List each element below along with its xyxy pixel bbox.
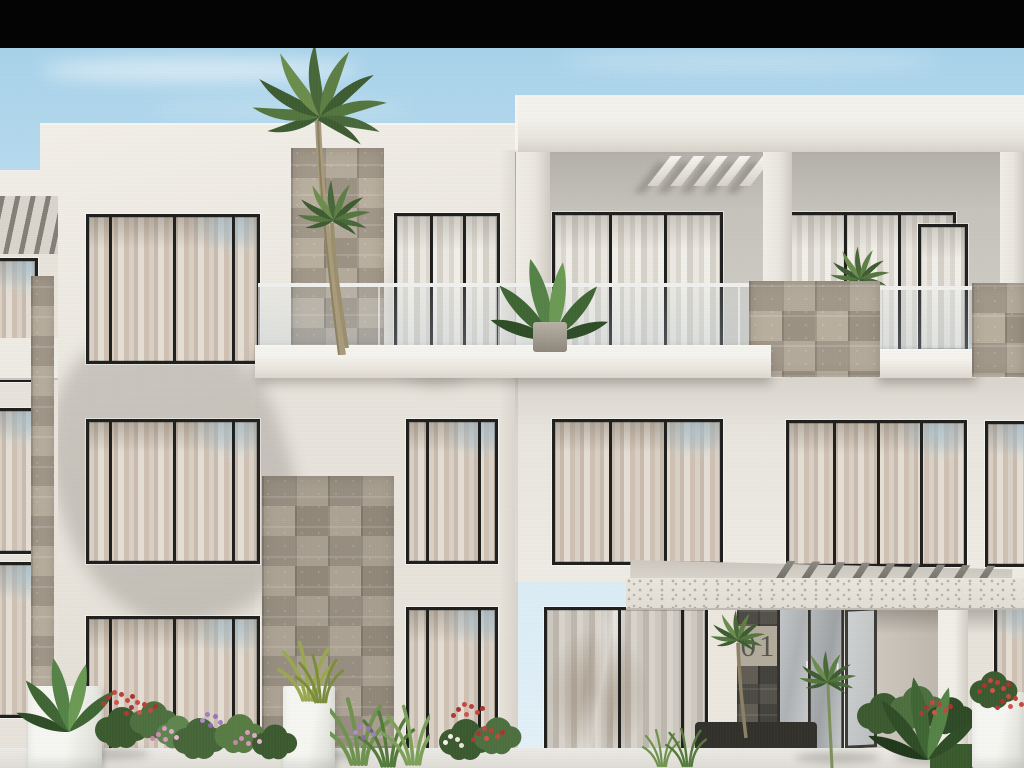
banana-plant-left [14, 604, 124, 739]
flowers-red [135, 700, 140, 705]
roof-slab [515, 95, 1024, 154]
pergola-fins [655, 152, 775, 194]
grass-tufts [635, 728, 715, 768]
far-left-slab [0, 170, 58, 198]
fern-plant [276, 628, 346, 708]
window-mullion [426, 422, 429, 561]
letterbox-bar [0, 0, 1024, 48]
stone-parapet [972, 283, 1024, 377]
window-right-2f-2 [786, 420, 967, 567]
flowers-pink [245, 730, 250, 735]
window-mullion [478, 422, 481, 561]
window-mullion [109, 217, 112, 361]
flowers-red [112, 690, 117, 695]
window-right-2f-3 [985, 421, 1024, 567]
window-mullion [609, 422, 612, 562]
balcony-slab-segment [878, 349, 976, 378]
window-mullion [664, 422, 667, 562]
flowers-purple [358, 724, 363, 729]
palm-trunk [332, 223, 347, 348]
flowers-red [988, 678, 993, 683]
window-mullion [618, 610, 621, 752]
window-mullion [109, 422, 112, 561]
window-mullion [833, 423, 836, 564]
palm-trunk [738, 643, 746, 738]
cloud-streak [560, 52, 940, 72]
window-mullion [920, 423, 923, 564]
window-left-tower-2 [86, 419, 260, 564]
entrance-palm-plant [686, 598, 796, 738]
window-right-2f-1 [552, 419, 723, 565]
flowers-red [930, 700, 935, 705]
window-mullion [877, 423, 880, 564]
window-mullion [173, 217, 176, 361]
flowers-pink [162, 726, 167, 731]
flowers-red [1006, 694, 1011, 699]
foreground-palm [786, 648, 876, 768]
flowers-red [462, 702, 467, 707]
flowers-purple [205, 712, 210, 717]
window-middle-2f [406, 419, 498, 564]
far-left-pergola [0, 196, 58, 254]
balcony-plant-pot [533, 322, 567, 352]
window-mullion [232, 422, 235, 561]
small-palm-tree [272, 168, 397, 348]
window-mullion [173, 422, 176, 561]
shrub-cluster [966, 652, 1024, 710]
flowers-white [448, 734, 453, 739]
flowers-red [482, 726, 487, 731]
glass-balustrade [880, 286, 972, 352]
exterior-render-scene: 01 [0, 0, 1024, 768]
